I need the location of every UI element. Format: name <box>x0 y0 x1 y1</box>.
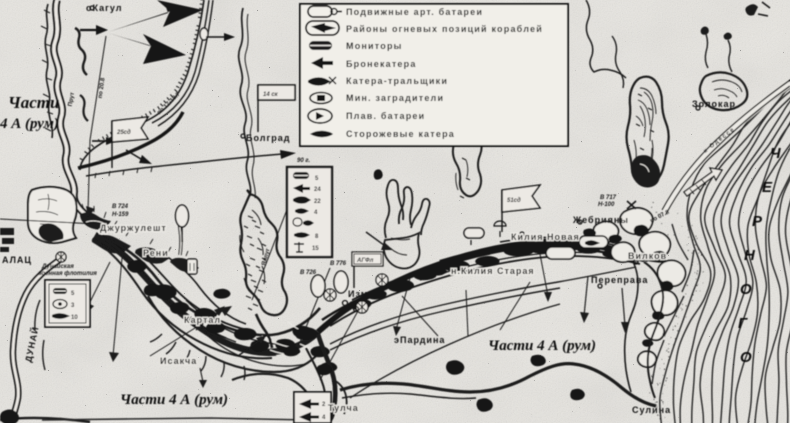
svg-text:Районы огневых позиций корабле: Районы огневых позиций кораблей <box>346 24 543 34</box>
svg-text:15: 15 <box>312 246 319 252</box>
svg-text:АЛАЦ: АЛАЦ <box>2 255 32 265</box>
svg-text:Подвижные арт. батареи: Подвижные арт. батареи <box>346 7 483 17</box>
svg-text:О: О <box>740 281 752 298</box>
svg-text:Катера-тральщики: Катера-тральщики <box>346 76 448 86</box>
svg-text:51сд: 51сд <box>507 198 521 204</box>
svg-text:Е: Е <box>762 179 773 196</box>
svg-text:Р: Р <box>752 213 763 230</box>
svg-text:Болград: Болград <box>246 133 290 143</box>
svg-text:Части: Части <box>8 93 59 112</box>
svg-text:90 г.: 90 г. <box>297 158 310 164</box>
svg-text:14 ск: 14 ск <box>263 92 279 98</box>
svg-text:22: 22 <box>314 199 321 205</box>
svg-text:эПардина: эПардина <box>394 335 445 345</box>
svg-text:Переправа: Переправа <box>591 275 648 285</box>
svg-text:АГФл: АГФл <box>356 258 374 264</box>
svg-text:4 А (рум): 4 А (рум) <box>0 116 59 132</box>
svg-text:В 724: В 724 <box>112 204 129 210</box>
svg-text:Тулча: Тулча <box>328 403 359 413</box>
svg-text:Золокар: Золокар <box>692 99 736 109</box>
svg-text:Измаил: Измаил <box>348 289 388 299</box>
svg-text:Сулина: Сулина <box>632 405 671 415</box>
svg-text:Сторожевые катера: Сторожевые катера <box>346 129 455 139</box>
svg-text:В 776: В 776 <box>330 261 347 267</box>
svg-text:Вилков: Вилков <box>628 251 667 261</box>
svg-text:Части 4 А (рум): Части 4 А (рум) <box>120 392 228 408</box>
svg-text:В 726: В 726 <box>300 270 317 276</box>
svg-text:Н: Н <box>744 247 756 264</box>
svg-text:оКагул: оКагул <box>86 3 122 13</box>
svg-text:Килия Новая: Килия Новая <box>511 232 580 242</box>
svg-text:24: 24 <box>314 187 321 193</box>
svg-text:В 717: В 717 <box>600 195 617 201</box>
svg-text:Г: Г <box>738 315 748 332</box>
svg-text:военная флотилия: военная флотилия <box>38 270 97 277</box>
svg-text:Н-100: Н-100 <box>598 202 615 208</box>
svg-text:Исакча: Исакча <box>160 356 197 366</box>
svg-text:Ч: Ч <box>770 145 781 162</box>
svg-text:Дунайская: Дунайская <box>41 263 74 270</box>
svg-text:Жебрияны: Жебрияны <box>572 215 629 225</box>
svg-text:Части 4 А (рум): Части 4 А (рум) <box>488 338 596 354</box>
svg-text:Плав. батареи: Плав. батареи <box>346 111 425 121</box>
svg-text:Мин. заградители: Мин. заградители <box>346 93 444 103</box>
svg-text:25сд: 25сд <box>116 130 131 136</box>
svg-text:н.Килия Старая: н.Килия Старая <box>451 266 535 276</box>
svg-text:Мониторы: Мониторы <box>346 41 403 51</box>
svg-text:10: 10 <box>71 315 78 321</box>
svg-text:Джуржулешт: Джуржулешт <box>100 223 167 233</box>
svg-text:Бронекатера: Бронекатера <box>346 59 417 69</box>
svg-text:О: О <box>740 349 752 366</box>
svg-text:Картал: Картал <box>184 315 221 325</box>
svg-text:Рени: Рени <box>143 248 169 258</box>
svg-text:Н-159: Н-159 <box>112 212 129 218</box>
